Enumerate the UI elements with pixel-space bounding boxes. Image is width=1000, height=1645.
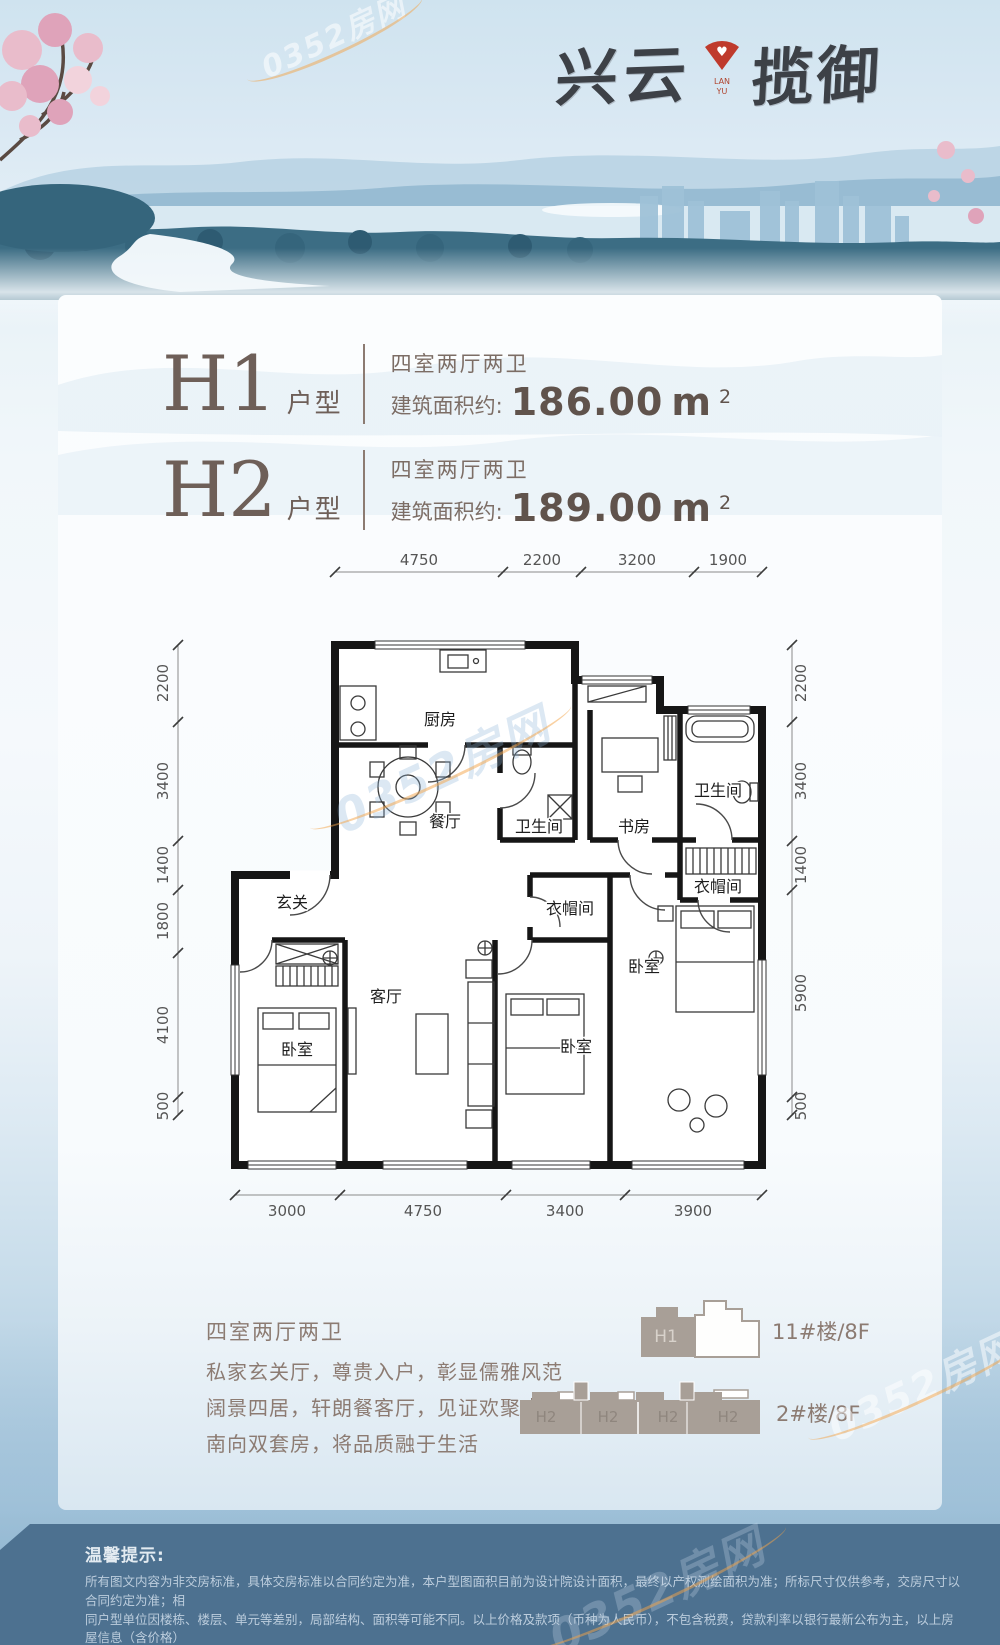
- dim-top-3: 3200: [618, 551, 656, 569]
- dim-bottom-1: 3000: [268, 1202, 306, 1220]
- unit-h2-area-label: 建筑面积约:: [391, 496, 503, 526]
- building-h2-unit-tag-2: H2: [598, 1408, 619, 1426]
- unit-h1-name: H1: [162, 350, 277, 418]
- sun-reflection: [542, 203, 682, 217]
- dim-right-4: 5900: [792, 974, 810, 1012]
- unit-h2-area: 建筑面积约: 189.00 m 2: [391, 491, 731, 525]
- dim-top-1: 4750: [400, 551, 438, 569]
- svg-text:♥: ♥: [716, 45, 728, 60]
- disclaimer-footer: 温馨提示: 所有图文内容为非交房标准，具体交房标准以合同约定为准，本户型图面积目…: [0, 1524, 1000, 1645]
- divider: [363, 450, 365, 530]
- unit-row-h2: H2 户型 四室两厅两卫 建筑面积约: 189.00 m 2: [162, 444, 822, 536]
- room-label-bath-a: 卫生间: [515, 817, 563, 836]
- building-h1-unit-tag: H1: [654, 1327, 678, 1347]
- logo-text-right: 揽御: [749, 24, 884, 118]
- dim-bottom-2: 4750: [404, 1202, 442, 1220]
- dim-left-1: 2200: [154, 664, 172, 702]
- dim-right-2: 3400: [792, 762, 810, 800]
- unit-h1-rooms: 四室两厅两卫: [391, 348, 731, 378]
- unit-h1-area-unit: m: [671, 385, 711, 419]
- room-label-cloak-a: 衣帽间: [694, 877, 742, 896]
- room-label-study: 书房: [618, 817, 650, 836]
- dim-bottom-3: 3400: [546, 1202, 584, 1220]
- unit-h1-area-sup: 2: [719, 386, 731, 408]
- room-label-dining: 餐厅: [429, 812, 461, 831]
- unit-h1-area-label: 建筑面积约:: [391, 390, 503, 420]
- room-label-bedroom-c: 卧室: [628, 957, 660, 976]
- footer-line-2: 同户型单位因楼栋、楼层、单元等差别，局部结构、面积等可能不同。以上价格及款项（币…: [85, 1611, 960, 1645]
- unit-h1-area-value: 186.00: [511, 385, 664, 419]
- building-h1-diagram: H1: [638, 1296, 764, 1360]
- building-h2-unit-tag-4: H2: [718, 1408, 739, 1426]
- footer-title: 温馨提示:: [85, 1541, 960, 1566]
- building-h2-unit-tag-1: H2: [536, 1408, 557, 1426]
- unit-h2-rooms: 四室两厅两卫: [391, 454, 731, 484]
- building-h2-unit-tag-3: H2: [658, 1408, 679, 1426]
- feature-line-2: 阔景四居，轩朗餐客厅，见证欢聚盛宴: [206, 1392, 563, 1421]
- feature-line-1: 私家玄关厅，尊贵入户，彰显儒雅风范: [206, 1356, 563, 1385]
- dim-bottom-4: 3900: [674, 1202, 712, 1220]
- svg-text:LAN: LAN: [714, 77, 730, 86]
- unit-h2-area-value: 189.00: [511, 491, 664, 525]
- blossom-tree: [0, 13, 155, 252]
- logo-fan-emblem-icon: ♥ LAN YU: [700, 34, 744, 108]
- features-block: 四室两厅两卫 私家玄关厅，尊贵入户，彰显儒雅风范 阔景四居，轩朗餐客厅，见证欢聚…: [206, 1316, 563, 1464]
- feature-line-3: 南向双套房，将品质融于生活: [206, 1428, 563, 1457]
- svg-text:YU: YU: [716, 87, 728, 96]
- unit-h2-type-suffix: 户型: [287, 489, 343, 526]
- building-h2-diagram: H2 H2 H2 H2: [518, 1380, 766, 1436]
- floorplan: 4750 2200 3200 1900 3000 4750 3400 3900 …: [140, 540, 860, 1240]
- dim-left-5: 4100: [154, 1006, 172, 1044]
- room-label-living: 客厅: [370, 987, 402, 1006]
- room-label-cloak-b: 衣帽间: [546, 899, 594, 918]
- unit-h1-area: 建筑面积约: 186.00 m 2: [391, 385, 731, 419]
- footer-line-1: 所有图文内容为非交房标准，具体交房标准以合同约定为准，本户型图面积目前为设计院设…: [85, 1573, 960, 1611]
- unit-h1-type-suffix: 户型: [287, 383, 343, 420]
- dim-right-5: 500: [792, 1092, 810, 1121]
- room-label-bedroom-b: 卧室: [560, 1037, 592, 1056]
- dim-top-4: 1900: [709, 551, 747, 569]
- divider: [363, 344, 365, 424]
- unit-h2-name: H2: [162, 456, 277, 524]
- room-label-bath-b: 卫生间: [694, 781, 742, 800]
- logo-text-left: 兴云: [553, 24, 694, 119]
- dim-right-1: 2200: [792, 664, 810, 702]
- unit-row-h1: H1 户型 四室两厅两卫 建筑面积约: 186.00 m 2: [162, 338, 822, 430]
- features-title: 四室两厅两卫: [206, 1316, 563, 1346]
- dim-left-6: 500: [154, 1092, 172, 1121]
- dim-left-4: 1800: [154, 902, 172, 940]
- building-h1-label: 11#楼/8F: [772, 1316, 870, 1346]
- brand-logo: 兴云 ♥ LAN YU 揽御: [556, 26, 882, 116]
- dim-left-2: 3400: [154, 762, 172, 800]
- unit-h2-area-unit: m: [671, 491, 711, 525]
- dim-right-3: 1400: [792, 846, 810, 884]
- dim-left-3: 1400: [154, 846, 172, 884]
- room-label-bedroom-a: 卧室: [281, 1040, 313, 1059]
- room-label-entry: 玄关: [276, 893, 308, 912]
- unit-h2-area-sup: 2: [719, 492, 731, 514]
- poster-page: 兴云 ♥ LAN YU 揽御 H1 户型 四室两厅两卫 建筑面积约: 186.0…: [0, 0, 1000, 1645]
- dim-top-2: 2200: [523, 551, 561, 569]
